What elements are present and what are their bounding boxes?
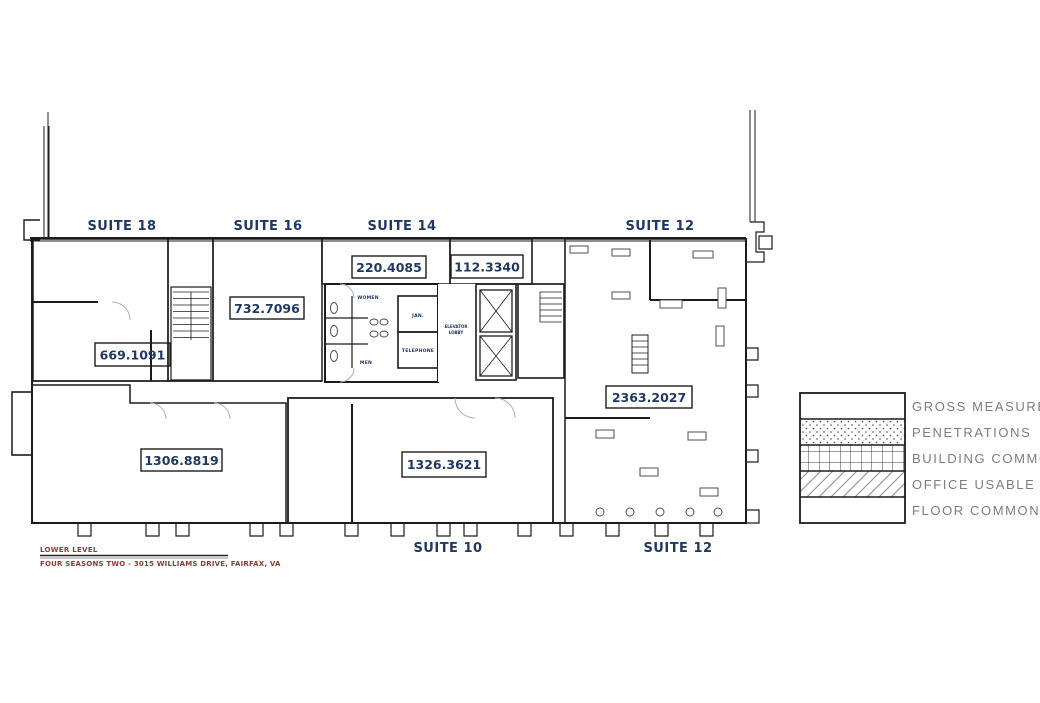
suite-label-12-top: SUITE 12	[625, 219, 694, 234]
suite-labels-top: SUITE 18 SUITE 16 SUITE 14 SUITE 12	[87, 219, 694, 234]
area-labels: 669.1091 732.7096 220.4085 112.3340 2363…	[95, 255, 692, 477]
legend-swatch-office-usable	[800, 471, 905, 497]
area-label-suite-12: 2363.2027	[606, 386, 692, 408]
legend-label-floor-common: FLOOR COMMON	[912, 503, 1040, 518]
room-label-janitor: JAN.	[411, 313, 424, 319]
area-label-suite-14: 220.4085	[352, 256, 426, 278]
floor-plan-drawing: SUITE 18 SUITE 16 SUITE 14 SUITE 12	[0, 0, 1040, 703]
legend: GROSS MEASURED PENETRATIONS BUILDING COM…	[800, 393, 1040, 523]
area-label-core: 112.3340	[451, 255, 523, 278]
room-label-telephone: TELEPHONE	[402, 348, 434, 354]
restroom-block: WOMEN MEN JAN. TELEPHONE	[325, 284, 438, 382]
legend-label-gross-measured: GROSS MEASURED	[912, 399, 1040, 414]
area-value-suite-16: 732.7096	[234, 301, 300, 316]
suite-label-14: SUITE 14	[367, 219, 436, 234]
area-label-suite-10: 1326.3621	[402, 452, 486, 477]
area-value-suite-10: 1326.3621	[407, 457, 481, 472]
building-common-region	[12, 381, 322, 523]
area-value-suite-18: 669.1091	[100, 348, 166, 363]
room-label-men: MEN	[360, 360, 372, 366]
drawing-level-title: LOWER LEVEL	[40, 546, 98, 554]
area-label-suite-18: 669.1091	[95, 343, 170, 366]
legend-swatch-building-common	[800, 445, 905, 471]
suite-label-10: SUITE 10	[413, 541, 482, 556]
suite-labels-bottom: SUITE 10 SUITE 12	[413, 541, 712, 556]
furniture	[570, 246, 726, 516]
area-label-building-common: 1306.8819	[141, 449, 222, 471]
plan-outline	[12, 238, 759, 536]
suite-label-18: SUITE 18	[87, 219, 156, 234]
suite-12-region	[565, 239, 746, 523]
legend-label-office-usable: OFFICE USABLE	[912, 477, 1035, 492]
suite-label-12-bottom: SUITE 12	[643, 541, 712, 556]
room-label-women: WOMEN	[357, 295, 379, 301]
legend-swatch-penetrations	[800, 419, 905, 445]
stairwell-west	[168, 239, 213, 381]
legend-label-penetrations: PENETRATIONS	[912, 425, 1031, 440]
suite-label-16: SUITE 16	[233, 219, 302, 234]
area-value-suite-14: 220.4085	[356, 260, 422, 275]
area-value-suite-12: 2363.2027	[612, 390, 686, 405]
legend-label-building-common: BUILDING COMMON	[912, 451, 1040, 466]
area-label-suite-16: 732.7096	[230, 297, 304, 319]
room-label-elevator-lobby-1: ELEVATOR	[445, 324, 468, 329]
room-label-elevator-lobby-2: LOBBY	[449, 330, 464, 335]
area-value-core: 112.3340	[454, 260, 520, 275]
area-value-building-common: 1306.8819	[144, 453, 218, 468]
floor-plan-page: SUITE 18 SUITE 16 SUITE 14 SUITE 12	[0, 0, 1040, 703]
elevator-core: ELEVATOR LOBBY	[438, 284, 564, 382]
drawing-building-title: FOUR SEASONS TWO - 3015 WILLIAMS DRIVE, …	[40, 560, 281, 568]
title-block: LOWER LEVEL FOUR SEASONS TWO - 3015 WILL…	[40, 546, 281, 568]
